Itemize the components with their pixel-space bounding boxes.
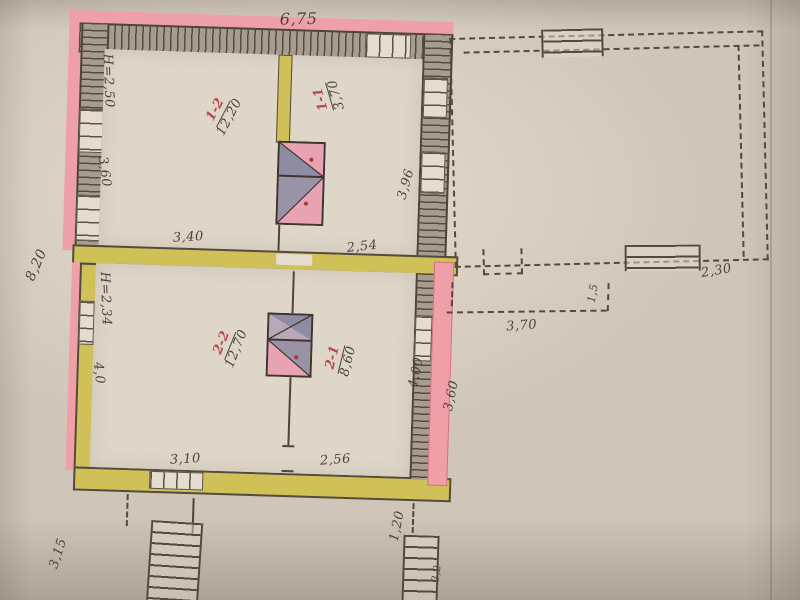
dim-top-width: 6,75: [280, 9, 318, 29]
dim-room12-height: H=2,50: [100, 53, 117, 108]
door-opening-middle: [276, 254, 312, 266]
window-symbol-right-1: [423, 77, 448, 118]
dim-path-length: 3,70: [506, 317, 538, 334]
floor-plan: 2,30 3,70 1,5 3,15 1,20 3,2 6,75 8,20 H=…: [49, 8, 787, 600]
annex-outline: [449, 30, 769, 268]
door-jamb-mark-1: [282, 445, 294, 447]
dim-left-height: 8,20: [22, 247, 50, 284]
dim-annex-width: 2,30: [700, 261, 733, 281]
window-symbol-bottom: [149, 471, 204, 491]
stove-symbol-lower: [266, 312, 314, 377]
scanned-floorplan-photo: 2,30 3,70 1,5 3,15 1,20 3,2 6,75 8,20 H=…: [0, 0, 800, 600]
dim-room22-height: H=2,34: [97, 272, 114, 327]
dim-steps-left: 3,15: [46, 536, 70, 570]
window-symbol-left-1: [78, 108, 103, 153]
door-jamb-mark-2: [282, 470, 294, 472]
steps-symbol-left: [146, 520, 203, 600]
path-end-tick: [607, 283, 610, 311]
window-symbol-left-lower: [78, 301, 94, 345]
window-symbol-annex-top: [541, 28, 604, 58]
window-symbol-annex-bottom: [625, 245, 701, 272]
window-symbol-right-2: [420, 151, 445, 194]
steps-right-dashed-line: [412, 503, 415, 533]
path-dashed-line: [447, 310, 607, 314]
path-start-tick: [451, 282, 454, 306]
dim-room22-bottom: 3,10: [169, 451, 201, 468]
dim-room12-bottom: 3,40: [172, 229, 204, 246]
dim-room21-bottom: 2,56: [319, 452, 351, 469]
room-floor-upper: [99, 49, 423, 255]
window-symbol-left-2: [76, 194, 101, 241]
dim-steps-right-side: 3,2: [430, 564, 443, 583]
steps-left-dashed-line: [126, 494, 129, 526]
window-symbol-top: [365, 33, 412, 58]
stove-symbol-upper: [275, 141, 326, 226]
dim-room22-width: 4,0: [90, 361, 107, 385]
partition-upper-yellow: [276, 55, 293, 143]
window-symbol-right-lower: [414, 315, 432, 362]
annex-dashed-outline-group: 2,30: [449, 30, 767, 270]
dim-path-width: 1,5: [585, 283, 601, 304]
room-floor-lower: [90, 263, 416, 477]
annex-jog-dashed: [482, 248, 523, 275]
